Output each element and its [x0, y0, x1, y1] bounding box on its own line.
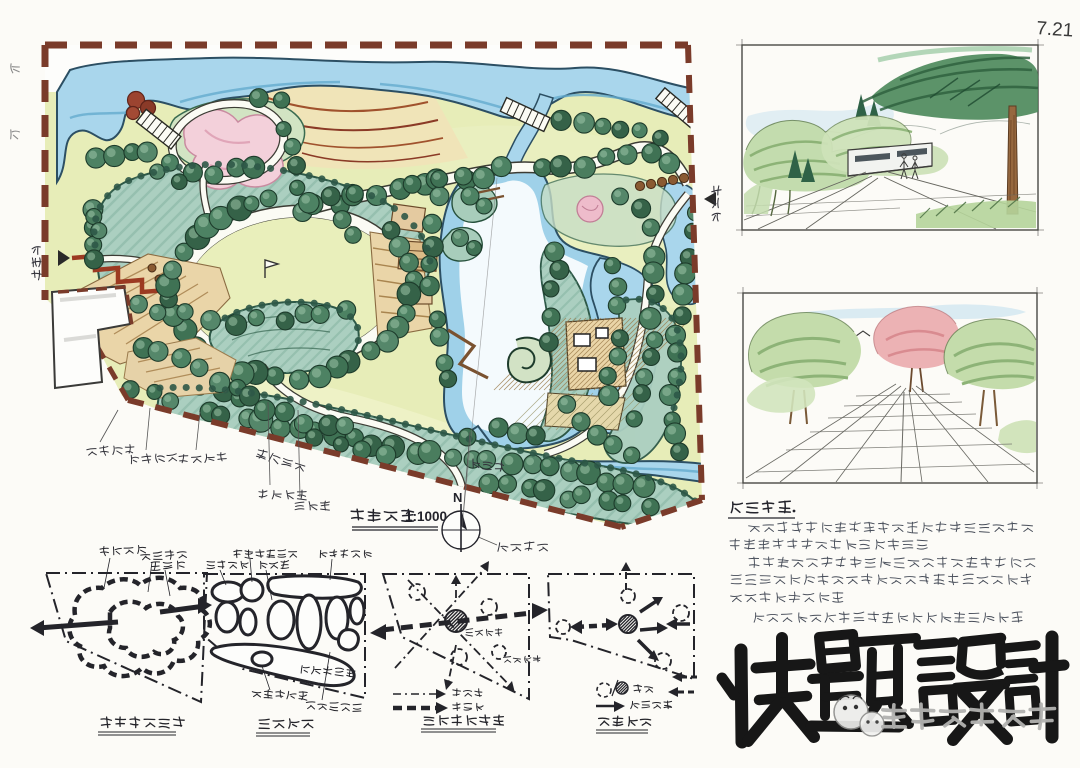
svg-text:7.21: 7.21: [1036, 18, 1074, 42]
svg-text:1:1000: 1:1000: [405, 509, 447, 524]
svg-text:N: N: [453, 490, 462, 505]
